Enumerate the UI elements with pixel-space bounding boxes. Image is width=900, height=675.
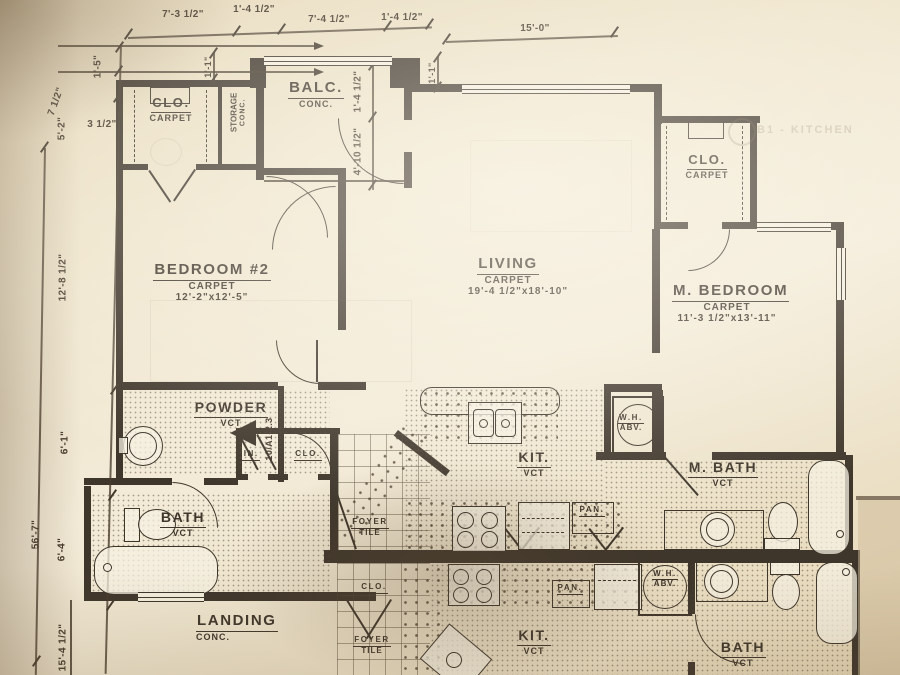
- powder-sink-basin: [129, 432, 157, 460]
- dim-text: 1'-1": [427, 57, 437, 89]
- room-label-closet-tl: CLO. CARPET: [140, 96, 202, 123]
- dim-text: 1'-4 1/2": [353, 68, 364, 116]
- closet-rod-dashed: [742, 126, 743, 220]
- wall-segment: [722, 222, 758, 229]
- bath-threshold: [138, 592, 204, 602]
- sink-drain: [501, 419, 510, 428]
- watermark-text: B1 - KITCHEN: [757, 124, 854, 136]
- wall-segment: [196, 164, 258, 170]
- leader-arrowhead: [314, 42, 324, 50]
- wall-segment: [604, 390, 611, 454]
- wall-segment: [404, 86, 412, 120]
- living-window: [462, 84, 630, 94]
- dimension-line: [446, 35, 618, 43]
- wall-segment: [836, 300, 844, 460]
- toilet-fixture: [768, 502, 798, 542]
- powder-faucet: [118, 437, 128, 454]
- stove-burner: [457, 531, 474, 548]
- mbath-sink-basin: [706, 518, 729, 541]
- stove-burner: [457, 512, 474, 529]
- refrigerator-fixture: [594, 564, 642, 610]
- bathtub-fixture: [816, 562, 858, 644]
- balcony-railing: [264, 56, 392, 66]
- stove-burner: [476, 587, 492, 603]
- dim-text: 7'-3 1/2": [150, 9, 216, 20]
- wall-segment: [652, 229, 660, 353]
- wall-segment: [204, 478, 238, 485]
- room-label-pantry2: PAN.: [552, 584, 588, 595]
- wall-segment: [654, 222, 688, 229]
- landing-outline: [70, 600, 72, 675]
- bathtub-fixture: [808, 460, 850, 555]
- bleed-through-shape: [470, 140, 632, 232]
- tub-drain: [842, 568, 850, 576]
- label-water-heater1: W.H. ABV.: [616, 414, 646, 433]
- closet-rod-dashed: [206, 90, 207, 162]
- dim-text: 1'-4 1/2": [378, 12, 426, 23]
- dim-text: 3 1/2": [80, 119, 124, 130]
- dim-text: 56'-7": [31, 514, 42, 556]
- mbedroom-side-window: [836, 248, 846, 300]
- mbedroom-window: [757, 222, 831, 232]
- tub-drain: [103, 563, 112, 572]
- stove-burner: [476, 569, 492, 585]
- door-leaf: [173, 169, 196, 201]
- closet-rod-dashed: [134, 90, 135, 162]
- room-label-living: LIVING CARPET 19'-4 1/2"x18'-10": [468, 256, 548, 297]
- dim-text: 7'-4 1/2": [302, 14, 356, 25]
- wall-segment: [318, 382, 366, 390]
- door-leaf: [149, 170, 172, 202]
- wall-segment: [604, 384, 662, 392]
- dim-text: 6'-1": [60, 423, 71, 463]
- wall-segment: [116, 164, 148, 170]
- refrigerator-dash: [522, 532, 564, 533]
- dim-text: 1'-5": [93, 47, 104, 87]
- room-label-foyer2: FOYER TILE: [348, 636, 396, 656]
- paper-edge-region: [858, 500, 900, 675]
- label-water-heater2: W.H. ABV.: [650, 570, 680, 589]
- dim-text: 15'-4 1/2": [58, 618, 69, 675]
- closet-rod-dashed: [666, 126, 667, 220]
- bathtub-fixture: [94, 546, 218, 595]
- room-label-bath1: BATH VCT: [154, 510, 212, 538]
- closet-shelf: [688, 122, 724, 139]
- room-label-storage: STORAGE CONC.: [231, 72, 248, 152]
- floor-plan-photo: B1 - KITCHEN: [0, 0, 900, 675]
- dim-tick: [442, 33, 451, 45]
- room-label-pantry1: PAN.: [574, 506, 610, 517]
- wall-segment: [654, 116, 661, 229]
- wall-segment: [256, 168, 346, 175]
- stove-burner: [453, 587, 469, 603]
- room-label-mbath: M. BATH VCT: [682, 460, 764, 488]
- wall-segment: [218, 84, 222, 168]
- dim-text: 1'-4 1/2": [230, 4, 278, 15]
- section-marker-arrow: [230, 420, 256, 446]
- door-leaf: [316, 340, 318, 382]
- door-arc: [688, 229, 730, 271]
- dim-text: 1'-1": [203, 51, 213, 83]
- stove-burner: [481, 512, 498, 529]
- sink-drain: [479, 419, 488, 428]
- leader-arrowhead: [314, 68, 324, 76]
- room-label-linen: LIN.: [232, 450, 264, 461]
- toilet-fixture: [772, 574, 800, 610]
- wall-segment: [836, 222, 844, 248]
- dim-text: 5'-2": [57, 109, 68, 149]
- room-label-kitchen2: KIT. VCT: [510, 628, 558, 656]
- room-label-kitchen1: KIT. VCT: [510, 450, 558, 478]
- room-label-landing: LANDING CONC.: [196, 613, 276, 642]
- refrigerator-dash: [598, 580, 636, 581]
- bath2-sink-basin: [710, 570, 733, 593]
- stove-burner: [481, 531, 498, 548]
- refrigerator-fixture: [518, 502, 570, 550]
- room-label-closet-right: CLO. CARPET: [682, 153, 732, 180]
- room-label-foyer1: FOYER TILE: [346, 518, 394, 538]
- wall-segment: [116, 382, 278, 390]
- toilet-base: [764, 538, 800, 550]
- dim-text: 12'-8 1/2": [58, 247, 69, 309]
- room-label-balcony: BALC. CONC.: [286, 80, 346, 109]
- wall-segment: [84, 478, 172, 485]
- wall-segment: [404, 152, 412, 188]
- stove-burner: [453, 569, 469, 585]
- tub-drain: [836, 530, 844, 538]
- room-label-mbedroom: M. BEDROOM CARPET 11'-3 1/2"x13'-11": [672, 283, 782, 324]
- bleed-through-shape: [150, 138, 182, 166]
- room-label-closet-lower: CLO.: [356, 583, 392, 594]
- dim-text: 15'-0": [512, 23, 558, 34]
- room-label-bedroom2: BEDROOM #2 CARPET 12'-2"x12'-5": [152, 262, 272, 303]
- door-arc: [338, 118, 404, 184]
- refrigerator-dash: [522, 518, 564, 519]
- wall-segment: [84, 486, 91, 598]
- dimension-line: [35, 148, 46, 675]
- room-label-bath2: BATH VCT: [712, 640, 774, 668]
- room-label-hall-closet: CLO.: [290, 450, 326, 461]
- dim-text: 6'-4": [57, 530, 68, 570]
